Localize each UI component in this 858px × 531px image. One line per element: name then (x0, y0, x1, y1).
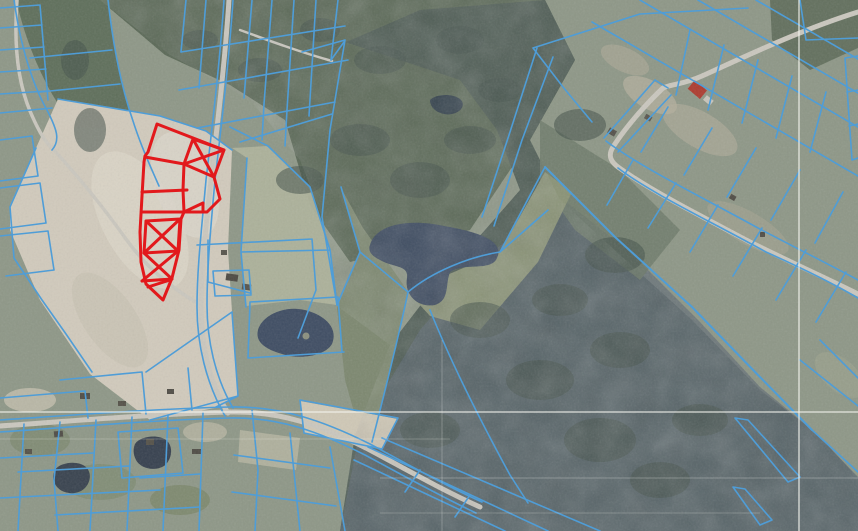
aerial-imagery-layer (0, 0, 858, 531)
map-canvas[interactable] (0, 0, 858, 531)
grain-texture (0, 0, 858, 531)
